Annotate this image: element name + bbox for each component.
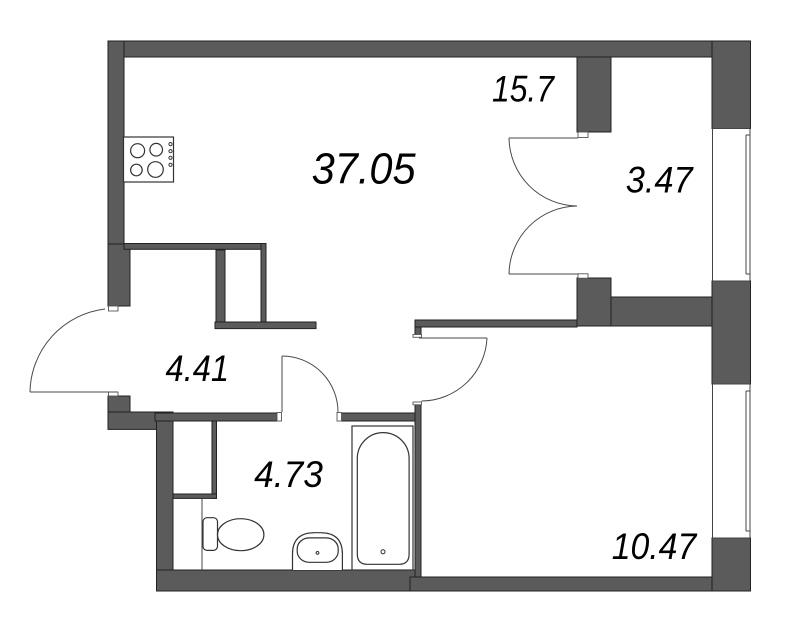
svg-text:3.47: 3.47 — [626, 160, 694, 201]
svg-text:10.47: 10.47 — [612, 526, 698, 567]
svg-text:15.7: 15.7 — [492, 69, 555, 110]
svg-text:37.05: 37.05 — [312, 145, 416, 194]
svg-text:4.41: 4.41 — [166, 348, 230, 389]
svg-text:4.73: 4.73 — [254, 454, 323, 495]
